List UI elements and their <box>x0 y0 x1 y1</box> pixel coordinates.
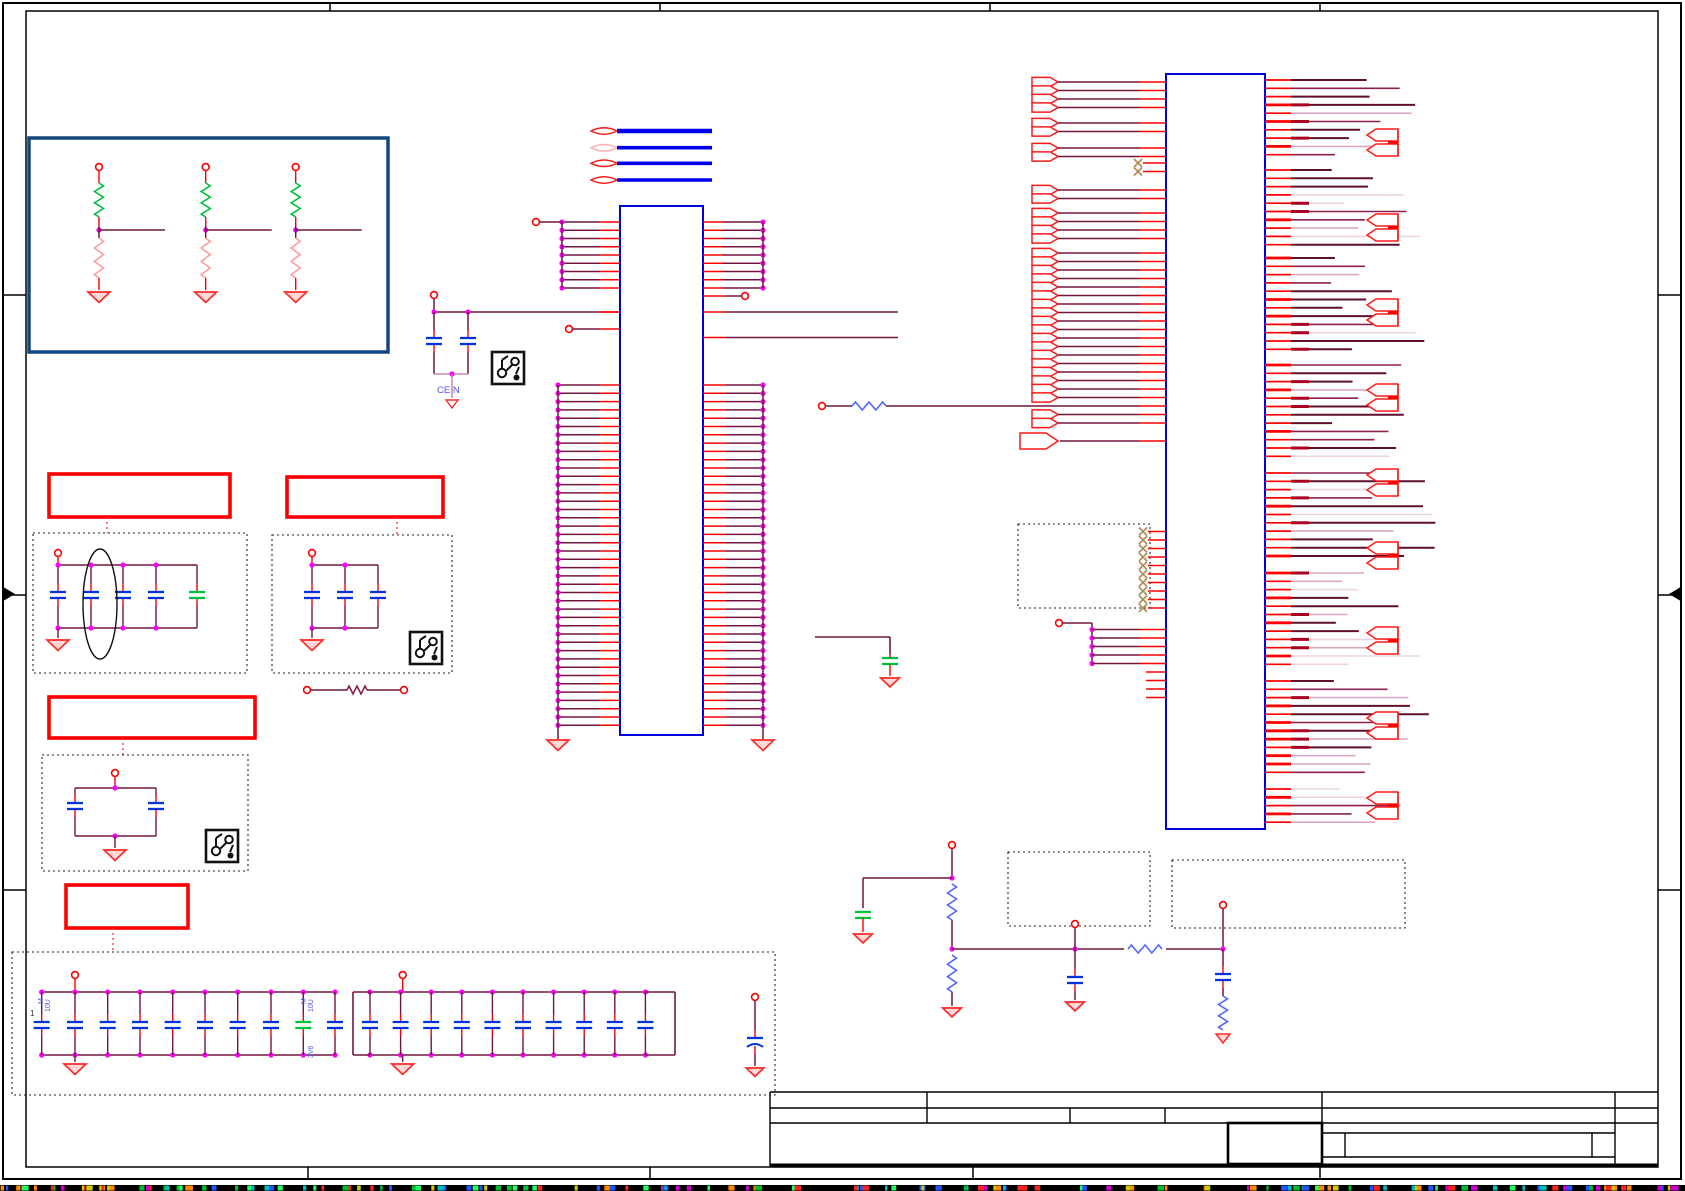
cap-tolerance-label: M <box>301 998 308 1004</box>
strip-dash <box>1017 1186 1023 1191</box>
strip-dash <box>1415 1186 1417 1191</box>
ground-symbol[interactable] <box>1066 1002 1085 1011</box>
pulldown-resistor <box>291 238 300 278</box>
strip-dash <box>370 1186 373 1191</box>
strip-dash <box>891 1186 896 1191</box>
divider-resistor <box>948 884 957 920</box>
right-ic-body <box>1166 74 1265 829</box>
ground-symbol[interactable] <box>195 292 217 303</box>
series-resistor <box>1128 945 1162 953</box>
strip-dash <box>1383 1186 1387 1191</box>
junction-dot <box>153 562 158 567</box>
offpage-connector[interactable] <box>591 177 617 184</box>
strip-dash <box>1604 1186 1606 1191</box>
pad <box>416 649 424 657</box>
cap-bank-1 <box>34 972 343 1075</box>
strip-dash <box>532 1186 537 1191</box>
net-port[interactable] <box>819 403 826 410</box>
strip-dash <box>165 1186 169 1191</box>
strip-dash <box>625 1186 628 1191</box>
port-flag[interactable] <box>1020 433 1058 449</box>
capacitor[interactable] <box>1067 969 1083 991</box>
strip-dash <box>1205 1186 1210 1191</box>
chevron <box>1367 469 1398 481</box>
strip-dash <box>343 1186 349 1191</box>
strip-dash <box>1 1186 4 1191</box>
strip-dash <box>597 1186 600 1191</box>
strip-dash <box>146 1186 150 1191</box>
strip-dash <box>1302 1186 1309 1191</box>
pull-network-box <box>29 138 388 352</box>
net-port[interactable] <box>742 293 749 300</box>
strip-dash <box>665 1186 667 1191</box>
no-connect-x <box>1139 587 1147 595</box>
capacitor[interactable] <box>370 584 386 606</box>
center-mark-left <box>4 588 14 600</box>
pad <box>212 847 220 855</box>
capacitor[interactable] <box>148 584 164 606</box>
strip-dash <box>1627 1186 1631 1191</box>
rc-network <box>854 842 1405 1043</box>
power-pin[interactable] <box>202 164 209 171</box>
strip-dash <box>1374 1186 1380 1191</box>
power-pin[interactable] <box>1072 921 1079 928</box>
strip-dash <box>438 1186 445 1191</box>
strip-dash <box>1281 1186 1287 1191</box>
chevron <box>1367 399 1398 411</box>
strip-dash <box>746 1186 749 1191</box>
dotted-group-box <box>12 952 775 1095</box>
strip-dash <box>537 1186 542 1191</box>
strip-dash <box>53 1186 55 1191</box>
port-flag[interactable] <box>1032 234 1058 243</box>
strip-dash <box>271 1186 274 1191</box>
strip-dash <box>794 1186 801 1191</box>
capacitor[interactable] <box>423 1014 439 1036</box>
capacitor[interactable] <box>197 1014 213 1036</box>
bus-port-arrow[interactable] <box>1367 214 1398 241</box>
chevron <box>1367 642 1398 654</box>
strip-dash <box>755 1186 762 1191</box>
strip-dash <box>1106 1186 1111 1191</box>
chevron <box>1367 129 1398 141</box>
pad-filled <box>432 655 438 661</box>
strip-dash <box>1328 1186 1332 1191</box>
capacitor[interactable] <box>607 1014 623 1036</box>
junction-dot <box>342 625 347 630</box>
pad <box>511 358 519 366</box>
strip-dash <box>523 1186 528 1191</box>
pad-filled <box>514 375 520 381</box>
strip-dash <box>1003 1186 1006 1191</box>
strip-dash <box>484 1186 487 1191</box>
chevron <box>1367 542 1398 554</box>
strip-dash <box>707 1186 710 1191</box>
cap-value-label: 10U <box>308 999 315 1012</box>
chevron <box>1367 792 1398 804</box>
strip-dash <box>1676 1186 1679 1191</box>
bulk-capacitor-region: 110UM10UM3V6 <box>12 952 775 1095</box>
offpage-connectors <box>591 128 712 184</box>
strip-dash <box>1552 1186 1558 1191</box>
no-connect-x <box>1139 553 1147 561</box>
strip-dash <box>86 1186 92 1191</box>
strip-dash <box>1589 1186 1593 1191</box>
port-flag[interactable] <box>1032 194 1058 203</box>
strip-dash <box>687 1186 689 1191</box>
strip-dash <box>1510 1186 1516 1191</box>
strip-dash <box>609 1186 615 1191</box>
strip-dash <box>1250 1186 1256 1191</box>
bus-port-arrow[interactable] <box>1367 129 1398 156</box>
capacitor[interactable] <box>327 1014 343 1036</box>
strip-dash <box>1287 1186 1291 1191</box>
no-connect-x <box>1134 159 1142 167</box>
strip-dash <box>1035 1186 1040 1191</box>
power-pin[interactable] <box>752 994 759 1001</box>
strip-dash <box>6 1186 8 1191</box>
color-strip <box>0 1185 1685 1191</box>
red-annotation-box <box>49 697 255 738</box>
right-ic[interactable] <box>819 74 1436 829</box>
strip-dash <box>1428 1186 1433 1191</box>
capacitor[interactable] <box>189 584 205 606</box>
pcb-footprint-icon <box>206 830 238 862</box>
offpage-connector[interactable] <box>591 144 617 151</box>
net-port[interactable] <box>533 219 540 226</box>
strip-dash <box>643 1186 648 1191</box>
net-port[interactable] <box>401 687 408 694</box>
junction-dot <box>309 562 314 567</box>
decoupling-areas <box>33 474 452 952</box>
pullup-resistor <box>95 183 104 217</box>
strip-dash <box>964 1186 967 1191</box>
strip-dash <box>1130 1186 1134 1191</box>
cap-value-label: 10U <box>45 999 52 1012</box>
strip-dash <box>1333 1186 1339 1191</box>
net-port[interactable] <box>304 687 311 694</box>
pull-network[interactable] <box>285 164 362 303</box>
strip-dash <box>431 1186 434 1191</box>
strip-dash <box>321 1186 324 1191</box>
strip-dash <box>1126 1186 1131 1191</box>
strip-dash <box>303 1186 306 1191</box>
single-polarized-cap <box>746 994 764 1077</box>
dotted-group-box <box>1172 860 1405 928</box>
cap-voltage-label: 3V6 <box>308 1045 315 1058</box>
no-connect-x <box>1139 579 1147 587</box>
power-pin[interactable] <box>292 164 299 171</box>
strip-dash <box>1540 1186 1546 1191</box>
series-resistor <box>852 402 886 410</box>
pullup-resistor <box>291 183 300 217</box>
bus-port-arrow[interactable] <box>1367 384 1398 411</box>
strip-dash <box>357 1186 361 1191</box>
chevron <box>1367 214 1398 226</box>
junction-dot <box>88 625 93 630</box>
red-annotation-box <box>66 885 188 928</box>
title-block <box>770 1092 1658 1166</box>
net-port[interactable] <box>566 326 573 333</box>
strip-dash <box>728 1186 734 1191</box>
capacitor[interactable] <box>637 1014 653 1036</box>
cap-bank-2 <box>353 972 675 1075</box>
strip-dash <box>1165 1186 1168 1191</box>
red-annotation-box <box>49 474 230 517</box>
chevron <box>1367 384 1398 396</box>
capacitor[interactable] <box>295 1014 311 1036</box>
strip-dash <box>1461 1186 1468 1191</box>
capacitor[interactable] <box>148 795 164 817</box>
strip-dash <box>1349 1186 1352 1191</box>
sheet-frame <box>3 3 1681 1179</box>
bus-port-arrow[interactable] <box>1367 627 1398 654</box>
strip-dash <box>61 1186 65 1191</box>
ground-symbol[interactable] <box>746 1068 764 1076</box>
strip-dash <box>854 1186 858 1191</box>
junction-dot <box>120 562 125 567</box>
strip-dash <box>1319 1186 1325 1191</box>
strip-dash <box>507 1186 512 1191</box>
strip-dash <box>473 1186 479 1191</box>
capacitor[interactable] <box>393 1014 409 1036</box>
decoupling-group-1 <box>47 549 205 659</box>
cen-cluster: CE N <box>426 292 620 408</box>
strip-dash <box>1606 1186 1611 1191</box>
strip-dash <box>1657 1186 1661 1191</box>
capacitor[interactable] <box>230 1014 246 1036</box>
power-pin[interactable] <box>399 972 406 979</box>
ground-symbol[interactable] <box>104 850 126 861</box>
strip-dash <box>860 1186 863 1191</box>
capacitor[interactable] <box>362 1014 378 1036</box>
power-pin[interactable] <box>96 164 103 171</box>
capacitor[interactable] <box>576 1014 592 1036</box>
strip-dash <box>1266 1186 1268 1191</box>
capacitor[interactable] <box>50 584 66 606</box>
schematic-sheet: CE N110UM10UM3V6 <box>0 0 1685 1191</box>
ground-symbol[interactable] <box>881 678 900 687</box>
cen-net-label: CE N <box>437 385 460 396</box>
capacitor[interactable] <box>67 1014 83 1036</box>
ground-arrow[interactable] <box>446 400 458 408</box>
power-pin[interactable] <box>1056 620 1063 627</box>
strip-dash <box>313 1186 316 1191</box>
strip-dash <box>1370 1186 1373 1191</box>
capacitor[interactable] <box>1215 966 1231 988</box>
strip-dash <box>416 1186 421 1191</box>
strip-dash <box>466 1186 471 1191</box>
no-connect-x <box>1139 545 1147 553</box>
ground-arrow[interactable] <box>1216 1034 1230 1043</box>
ground-symbol[interactable] <box>752 740 774 751</box>
strip-dash <box>82 1186 84 1191</box>
strip-dash <box>862 1186 869 1191</box>
chevron <box>1367 627 1398 639</box>
capacitor[interactable] <box>337 584 353 606</box>
ferrite-bead-row[interactable] <box>304 686 408 694</box>
ground-symbol[interactable] <box>301 640 323 651</box>
strip-dash <box>1157 1186 1163 1191</box>
strip-dash <box>1247 1186 1249 1191</box>
strip-dash <box>186 1186 193 1191</box>
chevron <box>1367 299 1398 311</box>
capacitor[interactable] <box>515 1014 531 1036</box>
ground-symbol[interactable] <box>943 1008 962 1017</box>
capacitor[interactable] <box>454 1014 470 1036</box>
no-connect-x <box>1134 168 1142 176</box>
strip-dash <box>604 1186 609 1191</box>
junction-dot <box>342 562 347 567</box>
divider-resistor <box>948 955 957 992</box>
strip-dash <box>480 1186 483 1191</box>
capacitor[interactable] <box>304 584 320 606</box>
capacitor[interactable] <box>546 1014 562 1036</box>
bus-port-arrow[interactable] <box>1367 299 1398 326</box>
no-connect-x <box>1139 570 1147 578</box>
pad <box>498 369 506 377</box>
bus-port-arrow[interactable] <box>1367 712 1398 739</box>
pullup-resistor <box>201 183 210 217</box>
pcb-footprint-icon <box>492 352 524 384</box>
junction-dot <box>153 625 158 630</box>
pulldown-resistor <box>95 238 104 278</box>
strip-dash <box>179 1186 182 1191</box>
strip-dash <box>1493 1186 1497 1191</box>
strip-dash <box>1293 1186 1299 1191</box>
series-resistor <box>1219 996 1228 1030</box>
strip-dash <box>109 1186 114 1191</box>
strip-dash <box>1612 1186 1615 1191</box>
strip-dash <box>51 1186 53 1191</box>
strip-dash <box>16 1186 20 1191</box>
pull-network[interactable] <box>88 164 165 303</box>
strip-dash <box>1417 1186 1422 1191</box>
ferrite-bead <box>347 686 367 694</box>
strip-dash <box>1471 1186 1478 1191</box>
pad <box>225 836 233 844</box>
strip-dash <box>885 1186 887 1191</box>
ground-symbol[interactable] <box>285 292 307 303</box>
power-pin[interactable] <box>309 550 316 557</box>
junction-dot <box>55 562 60 567</box>
chevron <box>1367 727 1398 739</box>
capacitor[interactable] <box>263 1014 279 1036</box>
power-pin[interactable] <box>431 292 438 299</box>
chevron <box>1367 484 1398 496</box>
center-ic-body <box>620 206 703 735</box>
strip-dash <box>202 1186 206 1191</box>
strip-dash <box>212 1186 217 1191</box>
dotted-group-box <box>1008 852 1150 926</box>
strip-dash <box>1621 1186 1626 1191</box>
strip-dash <box>689 1186 691 1191</box>
power-pin[interactable] <box>112 770 119 777</box>
strip-dash <box>34 1186 37 1191</box>
strip-dash <box>1522 1186 1525 1191</box>
decoupling-group-2 <box>301 550 442 664</box>
port-flag[interactable] <box>1032 127 1058 136</box>
ground-symbol[interactable] <box>64 1064 86 1075</box>
power-pin[interactable] <box>1220 902 1227 909</box>
port-flag[interactable] <box>1032 393 1058 402</box>
strip-dash <box>792 1186 795 1191</box>
cap-tolerance-label: M <box>38 998 45 1004</box>
capacitor[interactable] <box>460 330 476 352</box>
strip-dash <box>1563 1186 1566 1191</box>
schematic-canvas: CE N110UM10UM3V6 <box>0 0 1685 1191</box>
capacitor[interactable] <box>34 1014 50 1036</box>
strip-dash <box>247 1186 251 1191</box>
dotted-group-box <box>1018 524 1150 608</box>
pull-network[interactable] <box>195 164 272 303</box>
strip-dash <box>22 1186 28 1191</box>
pad <box>429 638 437 646</box>
offpage-connector[interactable] <box>591 160 617 167</box>
junction-dot <box>120 625 125 630</box>
strip-dash <box>101 1186 104 1191</box>
offpage-connector[interactable] <box>591 128 617 135</box>
capacitor-polarized[interactable] <box>747 1030 763 1054</box>
mid-cap-drop <box>815 637 899 687</box>
strip-dash <box>575 1186 578 1191</box>
port-flag[interactable] <box>1032 103 1058 112</box>
tb-nested-box <box>1228 1123 1322 1164</box>
strip-dash <box>1670 1186 1675 1191</box>
ground-symbol[interactable] <box>854 934 873 943</box>
chevron <box>1367 807 1398 819</box>
ground-symbol[interactable] <box>392 1064 414 1075</box>
capacitor[interactable] <box>484 1014 500 1036</box>
chevron <box>1367 229 1398 241</box>
no-connect-x <box>1139 596 1147 604</box>
cap-pin-number: 1 <box>30 1009 35 1018</box>
power-pin[interactable] <box>949 842 956 849</box>
strip-dash <box>996 1186 1001 1191</box>
capacitor[interactable] <box>426 330 442 352</box>
power-pin[interactable] <box>72 972 79 979</box>
strip-dash <box>139 1186 144 1191</box>
pulldown-resistor <box>201 238 210 278</box>
dotted-group-box <box>33 533 247 673</box>
capacitor[interactable] <box>83 584 99 606</box>
port-flag[interactable] <box>1032 152 1058 161</box>
bus-port-arrow[interactable] <box>1367 469 1398 496</box>
capacitor[interactable] <box>67 795 83 817</box>
strip-dash <box>1668 1186 1670 1191</box>
capacitor[interactable] <box>100 1014 116 1036</box>
capacitor[interactable] <box>165 1014 181 1036</box>
ground-symbol[interactable] <box>47 640 69 651</box>
pad-filled <box>228 853 234 859</box>
strip-dash <box>278 1186 283 1191</box>
decoupling-group-3 <box>67 770 238 862</box>
junction-dot <box>112 785 117 790</box>
ground-symbol[interactable] <box>547 740 569 751</box>
strip-dash <box>978 1186 984 1191</box>
outer-border <box>3 3 1681 1179</box>
no-connect-x <box>1139 562 1147 570</box>
strip-dash <box>1435 1186 1438 1191</box>
strip-dash <box>513 1186 518 1191</box>
capacitor[interactable] <box>132 1014 148 1036</box>
strip-dash <box>1596 1186 1601 1191</box>
power-pin[interactable] <box>55 550 62 557</box>
ground-symbol[interactable] <box>88 292 110 303</box>
port-flag[interactable] <box>1032 418 1058 427</box>
center-ic[interactable] <box>533 206 898 751</box>
center-mark-right <box>1670 588 1680 600</box>
